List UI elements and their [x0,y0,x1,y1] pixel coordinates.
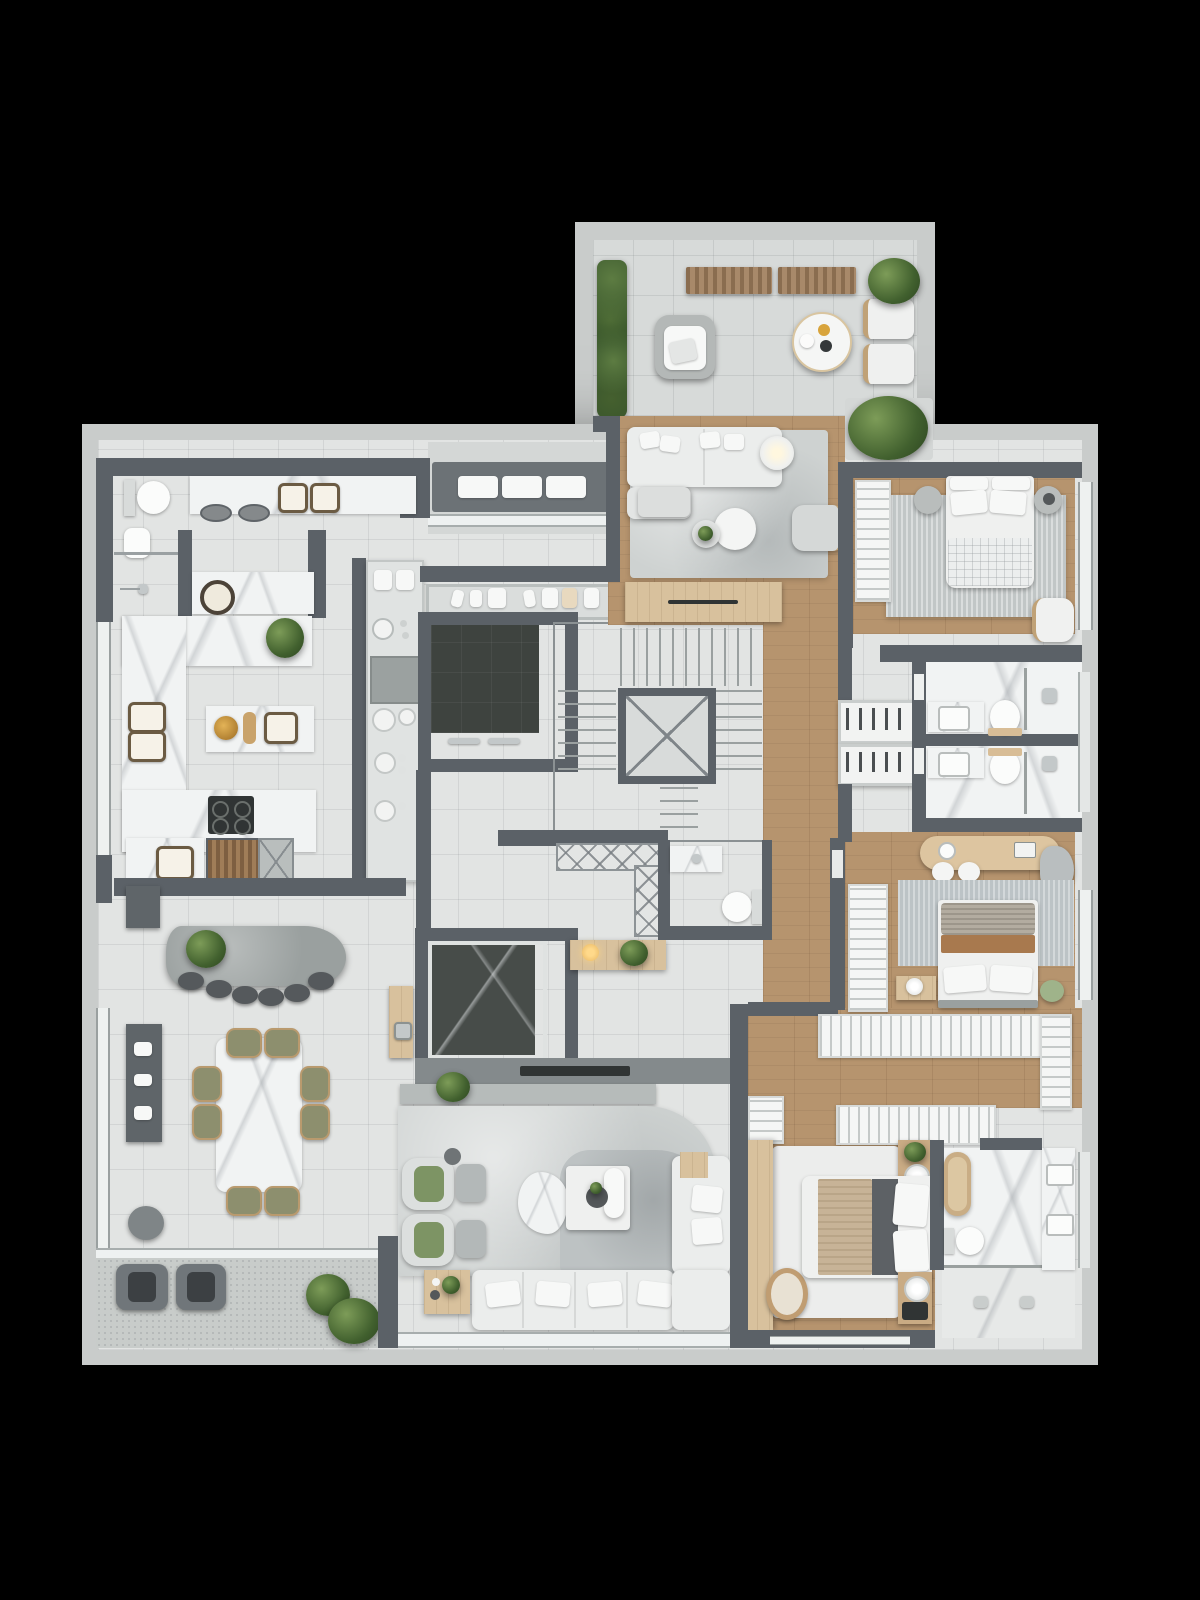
left-wall-upper [96,458,113,622]
shower-glass [1024,668,1027,730]
makeup-mirror [938,842,956,860]
console-plant [436,1072,470,1102]
floor-plan-canvas [0,0,1200,1600]
shower-partition [114,552,186,555]
washer-front [200,504,232,522]
bar-stool [284,984,310,1002]
bar-stool [232,986,258,1004]
nightstand-lamp [904,1276,930,1302]
sofa-seam [522,1272,524,1328]
cabinet-plate [398,708,416,726]
upper-ottoman [638,487,690,517]
bedroom1-left-wall [838,462,853,648]
bed1-pillow [950,489,988,516]
bathroom1-door [914,674,924,700]
floor-lamp [760,436,794,470]
burner [234,801,251,818]
terrace-hedge-planter [597,260,627,418]
toilet [137,481,170,514]
sofa-seam [626,1272,628,1328]
kitchen-double-sink-a [128,702,166,733]
stair-well-void [618,688,716,784]
bedroom1-window [1078,482,1093,630]
small-side-table [444,1148,461,1165]
sofa-pillow [659,435,681,454]
coffee-table [714,508,756,550]
vanity-sink [1046,1214,1074,1236]
bench-cushion [546,476,586,498]
bathrooms-bottom-wall [912,818,1082,832]
armchair-green-cushion [414,1222,444,1258]
bathroom1-sink [938,706,970,731]
bed1-nightstand [914,486,942,514]
sofa-pillow [691,1217,723,1246]
powder-bottom-wall [658,926,772,940]
left-wall-corner [96,855,112,903]
shower-drain [974,1296,988,1308]
cabinet-basin [372,618,394,640]
bed2-brown-blanket [941,935,1035,953]
powder-toilet [722,892,752,922]
pantry-dish [488,588,506,608]
vanity-sink [1046,1164,1074,1186]
lower-living-sliding-door [390,1332,730,1348]
balcony-armchair-cushion [187,1272,215,1302]
bath-laundry-wall [178,530,192,618]
pantry-dish [562,588,577,608]
bed2-pillow [989,965,1033,994]
elevator-door-sill [448,738,480,744]
powder-right-wall [762,840,772,938]
master-bath-left-wall [930,1140,944,1270]
sofa-pillow [724,434,744,450]
bed3-pillow [892,1183,930,1228]
nightstand-plant [904,1142,926,1162]
sun-lounger [863,344,914,384]
sofa-pillow [691,1185,724,1214]
counter-plant [186,930,226,968]
nightstand-lamp [906,978,923,995]
shoes-row [846,752,906,772]
bedroom1-bottom-wall [880,645,1082,662]
cabinet-glass [398,766,406,774]
bench-cushion [502,476,542,498]
hall-wall-piece [838,640,852,702]
bathtub-inner [948,1157,967,1211]
dining-chair [226,1186,262,1216]
bed3-pillow [893,1229,930,1273]
bench-cushion [458,476,498,498]
nightstand-decor [1043,493,1055,505]
bar-cabinet-small [126,886,160,928]
burner [212,801,229,818]
console-plant [620,940,648,966]
cabinet-plate [374,752,396,774]
service-elevator-cab [431,625,539,733]
bedroom2-door [832,850,843,878]
pantry-dish [542,588,558,608]
bathroom2-sink [938,752,970,777]
bed1-pillow [989,489,1027,515]
dining-table [216,1038,302,1192]
terrace-bench [778,267,856,294]
bed3-tan-blanket [818,1179,872,1275]
bedroom2-wardrobe [848,884,888,1012]
terrace-bench [686,267,772,294]
bar-stool [178,972,204,990]
sideboard-handle [668,600,738,604]
terrace-shrub [848,396,928,460]
console-lamp [582,944,599,961]
dining-chair [300,1066,330,1102]
bathrooms-window [1078,672,1090,812]
armchair-green-cushion [414,1166,444,1202]
cabinet-tray-item [374,570,392,590]
island-sink [264,712,298,744]
dryer-front [238,504,270,522]
kitchen-plant [266,618,304,658]
island-cutting-board [243,712,256,744]
stair-treads-upper [620,628,760,686]
master-toilet-tank [944,1228,954,1254]
sectional-sofa-corner [672,1270,730,1330]
ottoman [456,1220,486,1258]
stair-treads-left [558,690,616,770]
balcony-right-wall [378,1236,398,1348]
powder-left-wall [658,840,670,938]
bar-item [134,1074,152,1086]
bedroom1-chair [1032,598,1074,642]
closet-wardrobe-run [836,1105,996,1145]
pantry-dish [584,588,599,608]
ottoman [456,1164,486,1202]
closet-wardrobe-run [818,1014,1072,1058]
laundry-sink [310,483,340,513]
cabinet-plate [372,708,396,732]
kitchen-cabinet-wall [352,558,366,880]
cabinet-plate [374,800,396,822]
dining-window-left [96,1008,110,1250]
makeup-items [1014,842,1036,858]
shower-head [1042,688,1057,703]
elevator-door-sill [488,738,520,744]
bathroom2-toilet-seat [988,748,1022,756]
bbq-sink [156,846,194,880]
nightstand-tray [902,1302,928,1320]
bed2-woven-blanket [941,903,1035,935]
built-in-oven [370,656,420,704]
shoes-row [846,708,906,730]
sofa-pillow [587,1281,623,1308]
master-shower-floor [942,1268,1075,1338]
master-bath-window [1078,1152,1090,1268]
bed2-headboard [938,1000,1038,1008]
terrace-table-plate [820,340,832,352]
side-table-cup [432,1278,440,1286]
sun-lounger [863,299,914,339]
burner [234,818,251,835]
bed1-headboard-cushion [950,477,988,490]
closet-wardrobe-side [1040,1014,1072,1110]
living-closet-wall [730,1004,748,1348]
sofa-seam [574,1272,576,1328]
terrace-potted-plant [868,258,920,304]
closet-wardrobe-piece [748,1096,784,1144]
shower-glass [1024,752,1027,814]
vanity-stool [932,862,954,882]
bed1-headboard-cushion [992,477,1030,490]
table-plant [698,526,713,541]
vanity-stool [958,862,980,882]
hall-wall-piece [838,784,852,842]
bed1-quilted-throw [948,538,1032,586]
cabinet-dot [400,620,407,627]
dining-chair [226,1028,262,1058]
sofa-pillow [637,1280,674,1308]
bed2-pillow [943,964,987,994]
living-left-wall [606,416,620,582]
dining-chair [264,1028,300,1058]
shower-arm [120,588,140,590]
powder-faucet [692,854,701,863]
dining-chair [192,1066,222,1102]
side-table-plant [442,1276,460,1294]
pantry-dish [470,590,482,607]
kitchen-double-sink-b [128,731,166,762]
pantry-wall [420,566,620,582]
bathroom2-door [914,748,924,774]
round-pouf [128,1206,164,1240]
service-top-wall [96,458,430,476]
sofa-pillow [485,1280,522,1308]
sofa-pillow [639,430,661,449]
laundry-sink [278,483,308,513]
green-pouf [1040,980,1064,1002]
master-bath-top-wall [980,1138,1042,1150]
cabinet-glass [398,802,406,810]
kitchen-window-left [96,622,111,856]
terrace-table-cup [800,334,814,348]
sofa-back-tray [680,1152,708,1178]
dining-chair [192,1104,222,1140]
tv-screen [520,1066,630,1076]
nook-sliding-door [428,514,618,527]
shower-head [1042,756,1057,771]
bar-item [134,1106,152,1120]
bathroom1-toilet-seat [988,728,1022,736]
private-elevator-cab [432,945,535,1055]
dining-chair [264,1186,300,1216]
sofa-pillow [535,1281,571,1308]
shower-drain [1020,1296,1034,1308]
cabinet-glass [398,754,406,762]
table-decor-plant [590,1182,602,1194]
bedroom3-window [770,1336,910,1345]
side-table-cup [430,1290,440,1300]
bedroom2-window [1078,890,1093,1000]
terrace-table-bowl [818,324,830,336]
burner [212,818,229,835]
utility-pot-sink [200,580,235,615]
bar-stool [308,972,334,990]
bar-stool [206,980,232,998]
balcony-armchair-cushion [128,1272,156,1302]
bar-stool [258,988,284,1006]
sofa-pillow [699,431,721,449]
call-button [394,1022,412,1040]
toilet-tank [124,480,135,516]
cabinet-dot [402,632,409,639]
cabinet-tray-item [396,570,414,590]
dining-chair [300,1104,330,1140]
bedroom1-wardrobe [855,480,891,602]
bedroom3-chair [766,1268,808,1320]
balcony-plant [328,1298,380,1344]
bar-item [134,1042,152,1056]
island-fruit-bowl [214,716,238,740]
master-toilet [956,1227,984,1255]
